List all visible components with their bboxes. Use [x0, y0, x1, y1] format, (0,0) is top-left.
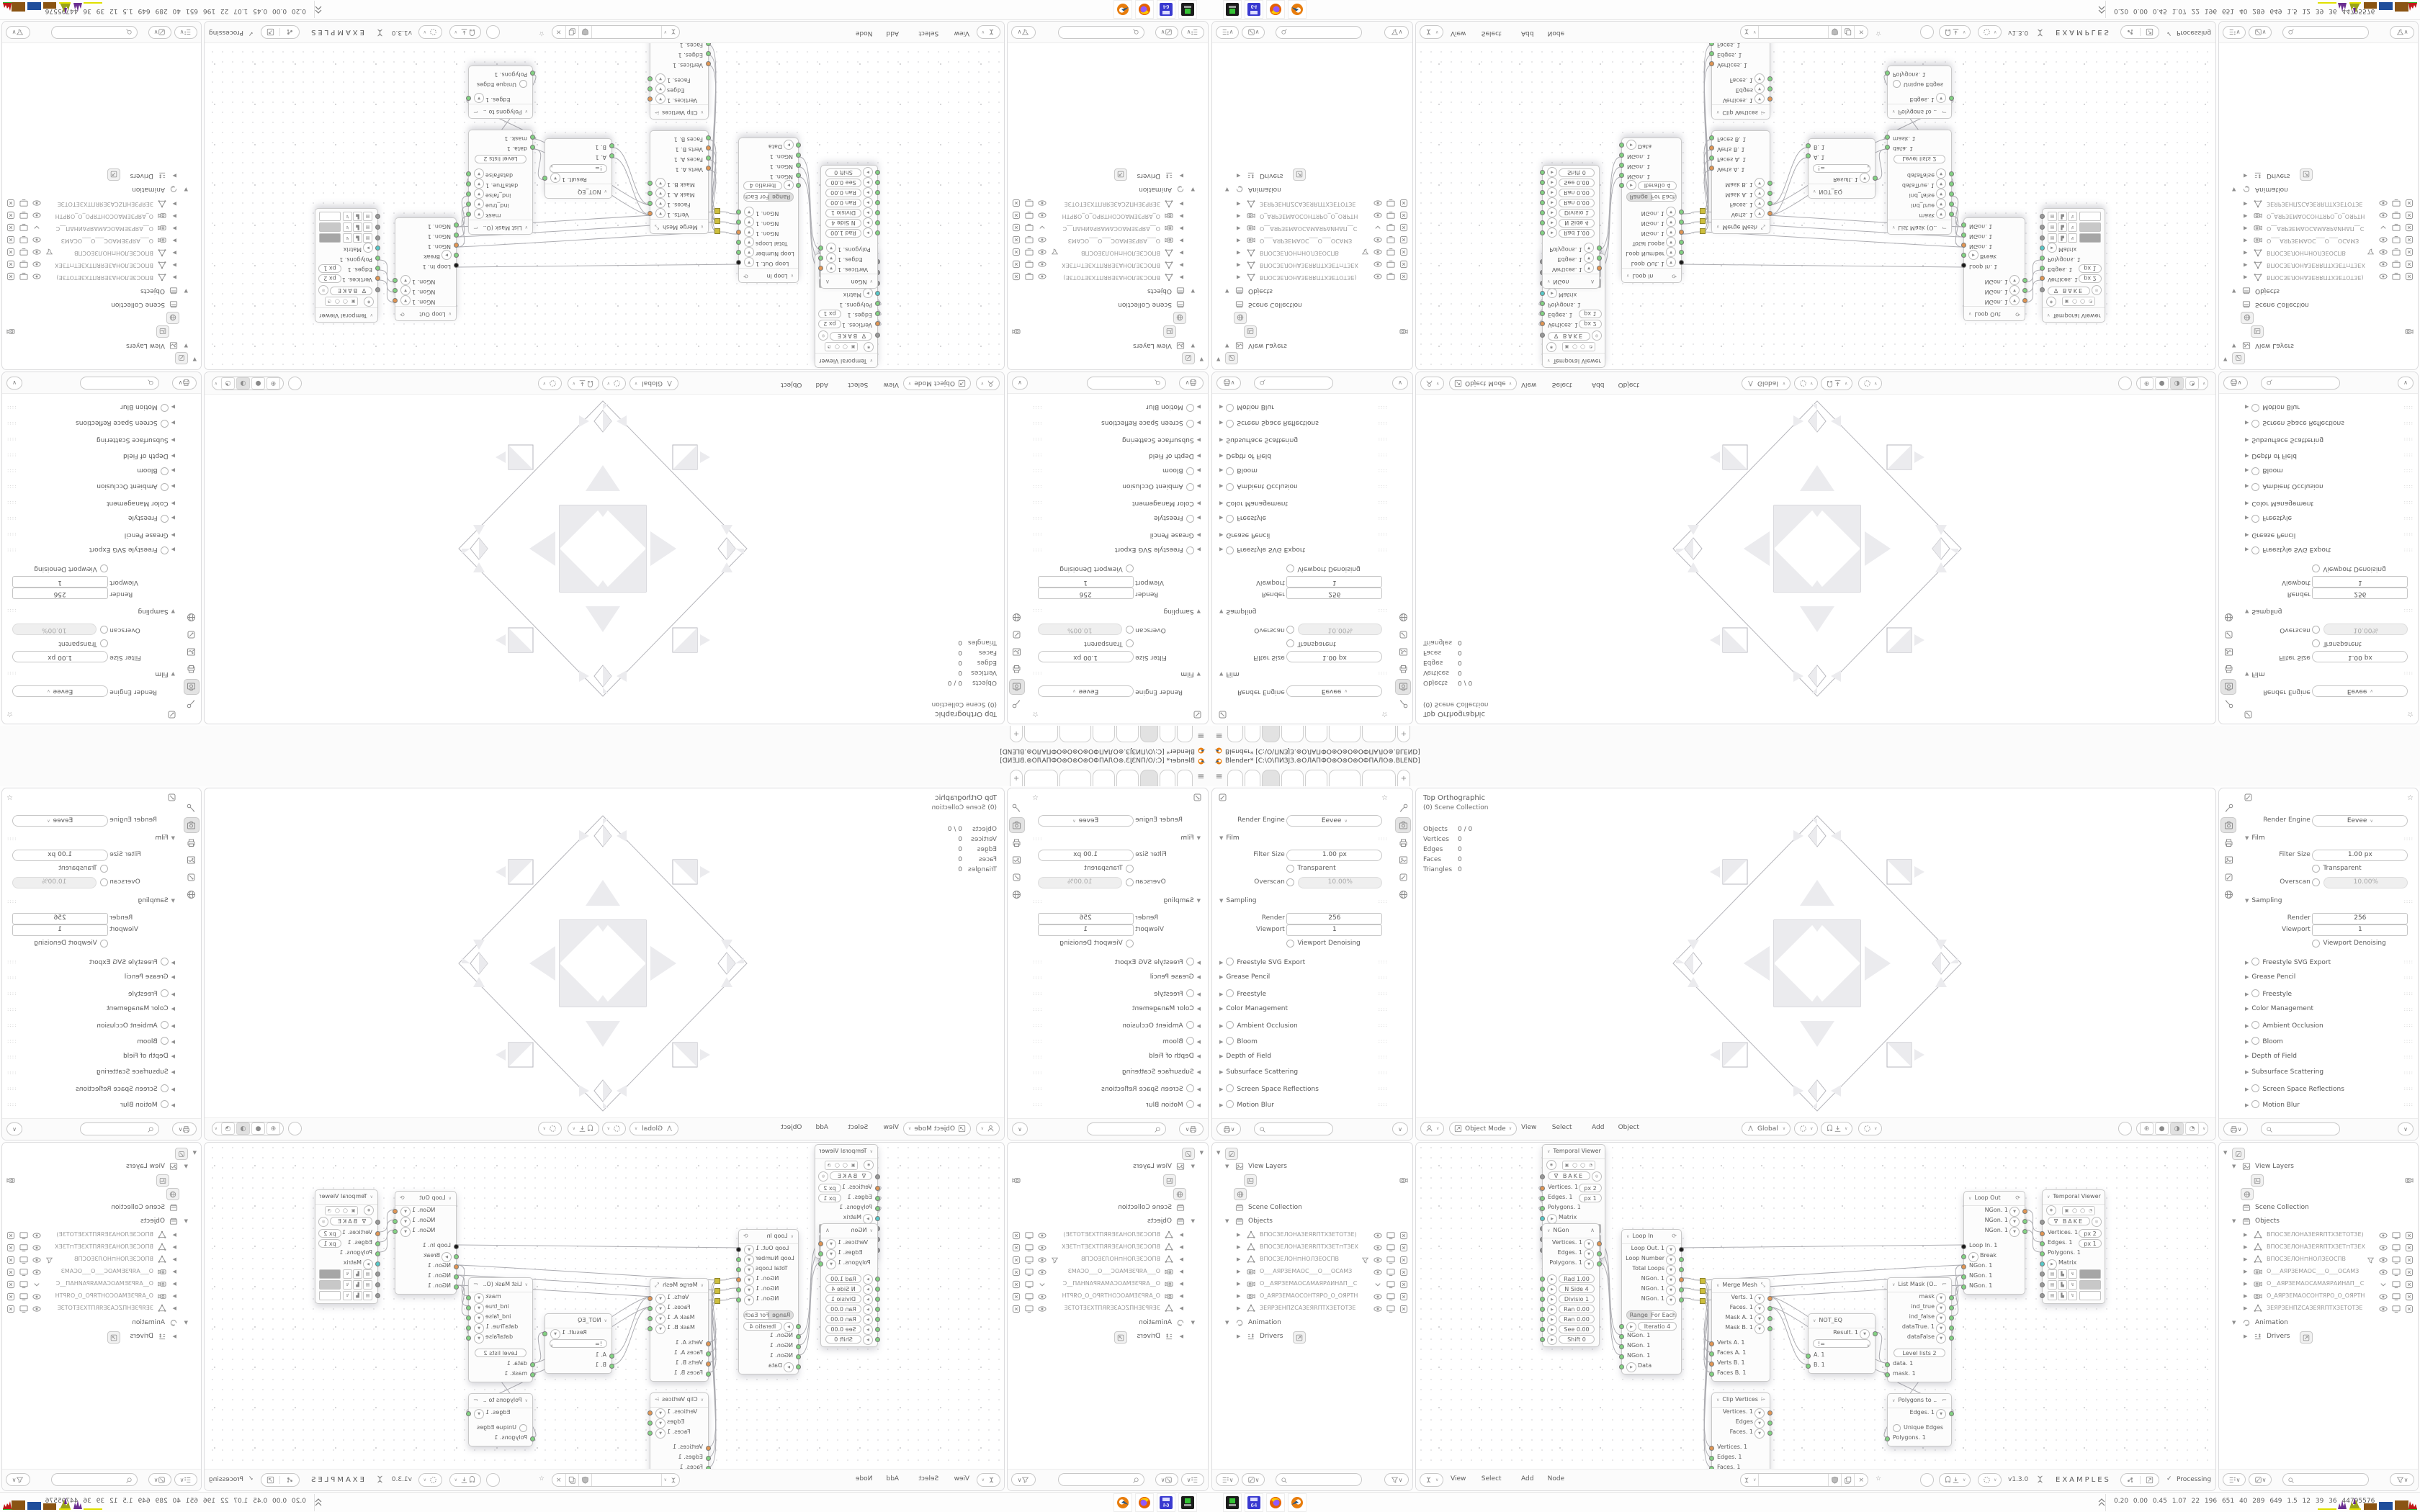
- node-not-eq[interactable]: ∨NOT_EQ▼Result. 1!=∨A. 1B. 1: [1808, 1313, 1875, 1374]
- socket-value-button[interactable]: ▼: [1860, 1329, 1870, 1339]
- socket-green-icon[interactable]: [454, 1254, 459, 1259]
- scene-button[interactable]: [175, 1148, 188, 1160]
- filter-id-button[interactable]: ∨: [148, 1473, 171, 1486]
- outliner-objects-row[interactable]: ▼Objects: [2, 1215, 201, 1228]
- socket-green-icon[interactable]: [375, 1251, 380, 1256]
- filter-id-button[interactable]: ∨: [1155, 26, 1178, 39]
- filter-size-field[interactable]: 1.00 px: [2312, 651, 2408, 662]
- socket-value-button[interactable]: ▼: [1754, 198, 1765, 208]
- shading-solid-button[interactable]: ●: [251, 1122, 265, 1135]
- unique-edges-checkbox[interactable]: [516, 80, 527, 88]
- scene-button[interactable]: [2232, 352, 2245, 364]
- segment-range[interactable]: Range: [768, 192, 794, 202]
- node-not-eq[interactable]: ∨NOT_EQ▼Result. 1!=∨A. 1B. 1: [544, 1313, 612, 1374]
- properties-tab-scene[interactable]: [1009, 627, 1025, 643]
- section-freestyle[interactable]: ▶Freestyle: [1154, 989, 1201, 998]
- section-grease-pencil[interactable]: ▶Grease Pencil: [1150, 973, 1201, 981]
- section-freestyle[interactable]: ▶Freestyle: [1154, 514, 1201, 523]
- window-titlebar[interactable]: Blender* [C:\О\ПИЗЈЗ.⊛ОЛАПФО⊛О⊛О⊛ОФПАЛО⊛…: [0, 756, 1210, 767]
- node-header[interactable]: ∨Temporal Viewer✎: [815, 353, 877, 367]
- viewer-display-button[interactable]: ◯: [333, 298, 341, 306]
- display-mode-button[interactable]: ∨: [1181, 26, 1204, 39]
- socket-green-icon[interactable]: [1619, 153, 1624, 158]
- socket-green-icon[interactable]: [1597, 1261, 1602, 1266]
- outliner-view-layers-row[interactable]: ▼View Layers: [1008, 339, 1208, 351]
- socket-green-icon[interactable]: [1619, 184, 1624, 189]
- workspace-tab-2[interactable]: [1245, 726, 1260, 742]
- socket-green-icon[interactable]: [1961, 1284, 1966, 1290]
- viewport-denoising-checkbox[interactable]: [2312, 940, 2323, 948]
- outliner-search-input[interactable]: [2282, 26, 2369, 39]
- socket-value-button[interactable]: ▼: [1936, 1313, 1946, 1323]
- viewer-eye-button[interactable]: ◉: [1546, 1160, 1556, 1170]
- swatch-option-button[interactable]: ↯: [343, 212, 352, 221]
- outliner-object-row[interactable]: ▶О___АЯРЗЕМАОС___О___ОСАМЗ: [1008, 1266, 1208, 1278]
- socket-toggle-button[interactable]: ▶: [442, 1252, 452, 1262]
- fake-user-star-icon[interactable]: ☆: [539, 30, 544, 37]
- copy-button[interactable]: [566, 1474, 579, 1486]
- pixel-size-field[interactable]: px 2: [1579, 320, 1602, 328]
- view-layer-button[interactable]: [1163, 1174, 1176, 1187]
- swatch-option-button[interactable]: ▤: [2048, 1269, 2057, 1279]
- sampling-render-field[interactable]: 256: [12, 913, 108, 924]
- segment-for-each[interactable]: For Each: [1652, 192, 1677, 202]
- socket-cyan-icon[interactable]: [875, 1216, 880, 1221]
- socket-value-button[interactable]: ▼: [474, 1313, 484, 1323]
- socket-green-icon[interactable]: [736, 240, 741, 246]
- snapping-button[interactable]: ∨: [568, 377, 599, 390]
- operator-select[interactable]: !=∨: [1813, 1339, 1870, 1348]
- outliner-object-row[interactable]: ▶ЗЕЯРЗЕНПZСАЗЕЯRПТХЗЕТОТЗЕ: [1008, 197, 1208, 210]
- shield-button[interactable]: [1828, 26, 1841, 38]
- pivot-point-button[interactable]: ∨: [602, 1122, 626, 1135]
- socket-value-button[interactable]: ▼: [744, 227, 754, 237]
- outliner-object-row[interactable]: ▶О___АЯРЗЕМАОС___О___ОСАМЗ: [1212, 1266, 1412, 1278]
- outliner-object-row[interactable]: ▶ЗЕЯРЗЕНПZСАЗЕЯRПТХЗЕТОТЗЕ: [2, 1302, 201, 1315]
- viewer-display-button[interactable]: ◔: [825, 1161, 833, 1169]
- viewport-denoising-checkbox[interactable]: [1286, 564, 1297, 572]
- transparent-checkbox[interactable]: [2312, 639, 2323, 647]
- section-ambient-occlusion[interactable]: ▶Ambient Occlusion: [97, 482, 175, 491]
- socket-orange-icon[interactable]: [2040, 276, 2045, 282]
- properties-tab-world[interactable]: [2220, 610, 2236, 626]
- section-grease-pencil[interactable]: ▶Grease Pencil: [125, 973, 175, 981]
- socket-value-button[interactable]: ▼: [2009, 295, 2020, 305]
- viewer-display-button[interactable]: ▣: [2063, 1207, 2071, 1215]
- socket-value-button[interactable]: ▼: [1936, 1303, 1946, 1313]
- overscan-checkbox[interactable]: [1123, 625, 1134, 634]
- outliner-object-row[interactable]: ▶ВПОСЗЕЛОНАЗЕЯRПТХЗЕТОТЗЕ): [1008, 271, 1208, 283]
- outliner-view-layer-item[interactable]: [2, 1174, 201, 1186]
- outliner-object-row[interactable]: ▶ЗЕЯРЗЕНПZСАЗЕЯRПТХЗЕТОТЗЕ: [2219, 1302, 2418, 1315]
- swatch-option-button[interactable]: ↯: [2068, 212, 2077, 221]
- outliner-objects-row[interactable]: ▼Objects: [1212, 284, 1412, 297]
- workspace-tab-1[interactable]: [1227, 770, 1243, 786]
- socket-green-icon[interactable]: [1885, 1372, 1890, 1377]
- sampling-render-field[interactable]: 256: [2312, 913, 2408, 924]
- section-depth-of-field[interactable]: ▶Depth of Field: [1149, 452, 1201, 459]
- outliner-animation-row[interactable]: ▼Animation: [1008, 1317, 1208, 1329]
- render-engine-select[interactable]: Eevee∨: [1286, 815, 1382, 827]
- interaction-mode-select[interactable]: Object Mode∨: [903, 377, 971, 390]
- particles-button[interactable]: [280, 1476, 300, 1484]
- node-header[interactable]: ∨NGon∧: [821, 274, 877, 288]
- socket--icon[interactable]: [2040, 225, 2045, 230]
- menu-hamburger-icon[interactable]: ≡: [1214, 730, 1224, 741]
- display-mode-button[interactable]: ∨: [174, 26, 197, 39]
- node-pill-field[interactable]: Level lists 2: [1894, 1349, 1945, 1357]
- socket-green-icon[interactable]: [1540, 191, 1545, 196]
- socket-value-button[interactable]: ▼: [655, 1294, 665, 1304]
- socket-green-icon[interactable]: [1540, 1307, 1545, 1312]
- socket-value-button[interactable]: ▼: [474, 1409, 484, 1419]
- node-overlay-button[interactable]: ∨: [1978, 25, 2002, 39]
- sampling-viewport-field[interactable]: 1: [2312, 576, 2408, 588]
- socket-toggle-button[interactable]: ▶: [784, 180, 794, 190]
- socket-value-button[interactable]: ▼: [1666, 1285, 1676, 1295]
- swatch-option-button[interactable]: ▤: [363, 212, 372, 221]
- node-header[interactable]: ∨Temporal Viewer✎: [2043, 307, 2105, 322]
- socket-value-field[interactable]: N Side 4: [1559, 1284, 1595, 1293]
- socket-green-icon[interactable]: [796, 1364, 801, 1369]
- outliner-object-row[interactable]: ▶ВПОСЗЕЛОНАЗЕЯRПТХЗЕТ⊓ТЗЕХ: [2219, 1241, 2418, 1254]
- node-header[interactable]: ∨Polygons to ..⌐: [469, 104, 532, 118]
- swatch-option-button[interactable]: ↯: [2068, 222, 2077, 232]
- socket-value-button[interactable]: ▼: [1936, 209, 1946, 219]
- socket-value-button[interactable]: ▼: [1936, 1409, 1946, 1419]
- section-depth-of-field[interactable]: ▶Depth of Field: [123, 452, 175, 459]
- socket-value-button[interactable]: ▼: [744, 1285, 754, 1295]
- display-mode-button[interactable]: ∨: [174, 1473, 197, 1486]
- socket-green-icon[interactable]: [736, 1287, 741, 1292]
- swatch-option-button[interactable]: ↯: [343, 222, 352, 232]
- bake-camera-button[interactable]: ◎: [818, 330, 828, 341]
- socket-green-icon[interactable]: [875, 1307, 880, 1312]
- section-motion-blur[interactable]: ▶Motion Blur: [120, 1100, 175, 1109]
- outliner-drivers-row[interactable]: ▶Drivers: [2219, 1331, 2418, 1343]
- socket-toggle-button[interactable]: ▶: [1547, 228, 1557, 238]
- socket-toggle-button[interactable]: ▶: [784, 1322, 794, 1332]
- node-editor[interactable]: ∨Temporal Viewer✎◉▣◯◯◔∇ BAKE◎Vertices. 1…: [1415, 1142, 2216, 1491]
- outliner-filter-button[interactable]: ∨: [1384, 1473, 1409, 1486]
- swatch-option-button[interactable]: ▙: [353, 1269, 362, 1279]
- outliner-objects-row[interactable]: ▼Objects: [2, 284, 201, 297]
- socket-value-button[interactable]: ▼: [1936, 179, 1946, 189]
- taskbar-app-blender[interactable]: [1288, 0, 1307, 19]
- outliner-view-layer-item[interactable]: [1212, 1174, 1412, 1186]
- pin-icon[interactable]: ☆: [1032, 794, 1039, 802]
- viewer-eye-button[interactable]: ◉: [864, 1160, 874, 1170]
- section-freestyle[interactable]: ▶Freestyle: [2245, 989, 2292, 998]
- socket-green-icon[interactable]: [542, 1331, 547, 1336]
- socket-green-icon[interactable]: [466, 1411, 471, 1416]
- socket-green-icon[interactable]: [818, 246, 823, 251]
- swatch-option-button[interactable]: ↯: [2068, 1291, 2077, 1300]
- socket-value-field[interactable]: Iteratio 4: [743, 1322, 782, 1331]
- section-subsurface-scattering[interactable]: ▶Subsurface Scattering: [1122, 436, 1201, 444]
- outliner-object-row[interactable]: ▶ЗЕЯРЗЕНПZСАЗЕЯRПТХЗЕТОТЗЕ: [1008, 1302, 1208, 1315]
- overscan-checkbox[interactable]: [2312, 878, 2323, 887]
- node-tree-selector[interactable]: ∨×: [552, 25, 680, 39]
- properties-tab-view-layer[interactable]: [1009, 852, 1025, 868]
- socket-toggle-button[interactable]: ▶: [1547, 1315, 1557, 1325]
- socket-orange-icon[interactable]: [736, 1277, 741, 1282]
- menu-hamburger-icon[interactable]: ≡: [1214, 771, 1224, 782]
- socket--icon[interactable]: [2040, 1293, 2045, 1298]
- node-menu-select[interactable]: Select: [1482, 1475, 1502, 1482]
- socket-green-icon[interactable]: [736, 210, 741, 215]
- world-button[interactable]: [2241, 312, 2254, 324]
- pin-icon[interactable]: ☆: [2407, 794, 2414, 802]
- socket-green-icon[interactable]: [1619, 1354, 1624, 1359]
- socket-green-icon[interactable]: [466, 96, 471, 102]
- properties-tab-output[interactable]: [1395, 662, 1411, 678]
- viewer-display-button[interactable]: ◯: [333, 1207, 341, 1215]
- outliner-object-row[interactable]: ▶О___АЯРЗЕМАОС___О___ОСАМЗ: [2219, 234, 2418, 246]
- outliner-object-row[interactable]: ▶О_АЯРЗЕМАОСОНТЯРО_О_ОЯРТН: [1008, 210, 1208, 222]
- outliner-filter-button[interactable]: ∨: [2390, 26, 2414, 39]
- world-button[interactable]: [1234, 1188, 1247, 1200]
- socket-value-button[interactable]: ▼: [744, 1265, 754, 1275]
- shading-rendered-button[interactable]: ◔: [2185, 1122, 2199, 1135]
- socket-orange-icon[interactable]: [647, 1410, 653, 1416]
- window-titlebar[interactable]: Blender* [C:\О\ПИЗЈЗ.⊛ОЛАПФО⊛О⊛О⊛ОФПАЛО⊛…: [0, 745, 1210, 756]
- socket-value-button[interactable]: ▼: [826, 1259, 836, 1269]
- sampling-render-field[interactable]: 256: [12, 588, 108, 599]
- socket-green-icon[interactable]: [1540, 1277, 1545, 1282]
- socket-toggle-button[interactable]: ▶: [863, 1315, 873, 1325]
- outliner-drivers-row[interactable]: ▶Drivers: [2, 1331, 201, 1343]
- socket-orange-icon[interactable]: [375, 1231, 380, 1236]
- drivers-extra-button[interactable]: [2300, 1331, 2313, 1344]
- socket--icon[interactable]: [375, 1272, 380, 1277]
- socket-value-button[interactable]: ▼: [474, 168, 484, 179]
- section-freestyle[interactable]: ▶Freestyle: [1219, 989, 1266, 998]
- socket-value-field[interactable]: N Side 4: [1559, 219, 1595, 228]
- reroute-node[interactable]: [1700, 1298, 1706, 1304]
- taskbar-app-blender[interactable]: [1113, 1493, 1132, 1512]
- section-color-management[interactable]: ▶Color Management: [107, 500, 175, 507]
- socket-value-button[interactable]: ▼: [744, 1295, 754, 1305]
- view-layer-button[interactable]: [1163, 325, 1176, 338]
- socket-green-icon[interactable]: [466, 1336, 471, 1341]
- properties-tab-render[interactable]: [2220, 817, 2236, 833]
- add-workspace-tab-button[interactable]: +: [1010, 726, 1023, 742]
- viewer-eye-button[interactable]: ◉: [864, 342, 874, 352]
- socket-toggle-button[interactable]: ▶: [784, 1362, 794, 1372]
- node-menu-view[interactable]: View: [1451, 1475, 1466, 1482]
- socket--icon[interactable]: [2040, 1220, 2045, 1225]
- viewport-menu-view[interactable]: View: [1521, 381, 1536, 388]
- properties-tab-view-layer[interactable]: [1009, 644, 1025, 660]
- node-not-eq[interactable]: ∨NOT_EQ▼Result. 1!=∨A. 1B. 1: [1808, 138, 1875, 199]
- outliner-object-row[interactable]: ▶ВПОСЗЕЛОН⊓НОЛЗЕОСПВ: [2219, 246, 2418, 258]
- socket--icon[interactable]: [375, 214, 380, 219]
- segment-range[interactable]: Range: [1626, 1310, 1652, 1320]
- socket-value-button[interactable]: ▼: [400, 285, 411, 295]
- section-depth-of-field[interactable]: ▶Depth of Field: [1219, 452, 1271, 459]
- viewport-menu-view[interactable]: View: [1521, 1124, 1536, 1131]
- overscan-checkbox[interactable]: [1286, 878, 1297, 887]
- render-engine-select[interactable]: Eevee∨: [1286, 685, 1382, 697]
- outliner-object-row[interactable]: ▶О___АЯРЗЕМАОС___О___ОСАМЗ: [1008, 234, 1208, 246]
- render-engine-select[interactable]: Eevee∨: [1038, 685, 1134, 697]
- socket-black-icon[interactable]: [1679, 1247, 1684, 1252]
- swatch-option-button[interactable]: ▤: [363, 222, 372, 232]
- section-ambient-occlusion[interactable]: ▶Ambient Occlusion: [1219, 1021, 1298, 1030]
- outliner-object-row[interactable]: ▶ВПОСЗЕЛОНАЗЕЯRПТХЗЕТОТЗЕ): [2219, 271, 2418, 283]
- outliner-object-row[interactable]: ▶О__АЯРЗЕМАОСАМАЯРАИНАП__С: [1008, 1278, 1208, 1290]
- socket-cyan-icon[interactable]: [1540, 292, 1545, 297]
- socket-green-icon[interactable]: [466, 1315, 471, 1320]
- filter-id-button[interactable]: ∨: [2249, 26, 2272, 39]
- socket-black-icon[interactable]: [1961, 1244, 1966, 1249]
- properties-tab-output[interactable]: [184, 662, 200, 678]
- socket-green-icon[interactable]: [1885, 1436, 1890, 1441]
- bake-camera-button[interactable]: ◎: [318, 285, 328, 295]
- socket-green-icon[interactable]: [466, 1305, 471, 1310]
- overscan-field[interactable]: 10.00%: [1298, 624, 1382, 635]
- socket-green-icon[interactable]: [818, 256, 823, 261]
- socket-toggle-button[interactable]: ▶: [863, 177, 873, 187]
- section-bloom[interactable]: ▶Bloom: [1219, 1037, 1258, 1045]
- socket-value-button[interactable]: ▼: [1754, 1304, 1765, 1314]
- outliner-object-row[interactable]: ▶О__АЯРЗЕМАОСАМАЯРАИНАП__С: [1212, 1278, 1412, 1290]
- copy-button[interactable]: [566, 26, 579, 38]
- socket-green-icon[interactable]: [2040, 1241, 2045, 1246]
- socket-green-icon[interactable]: [393, 279, 398, 284]
- socket-toggle-button[interactable]: ▶: [1547, 1274, 1557, 1284]
- properties-tab-tool[interactable]: [2220, 696, 2236, 712]
- transparent-checkbox[interactable]: [1123, 639, 1134, 647]
- reroute-node[interactable]: [1700, 1278, 1706, 1284]
- node-polygons-to-[interactable]: ∨Polygons to ..⌐▼Edges. 1Unique EdgesPol…: [468, 1393, 533, 1446]
- pixel-size-field[interactable]: px 1: [2079, 1239, 2102, 1248]
- viewer-display-button[interactable]: ◯: [341, 1207, 349, 1215]
- section-color-management[interactable]: ▶Color Management: [1219, 500, 1288, 507]
- socket-value-field[interactable]: Ran 0.00: [825, 1315, 861, 1323]
- socket-value-button[interactable]: ▼: [2009, 1207, 2020, 1217]
- node-header[interactable]: ∨NOT_EQ: [1809, 184, 1875, 198]
- viewport-menu-select[interactable]: Select: [1552, 381, 1572, 388]
- socket-black-icon[interactable]: [454, 1244, 459, 1249]
- view-layer-button[interactable]: [1244, 325, 1257, 338]
- outliner-view-layer-item[interactable]: [1008, 326, 1208, 338]
- socket-value-button[interactable]: ▼: [400, 1217, 411, 1227]
- overscan-field[interactable]: 10.00%: [12, 624, 97, 635]
- outliner-scene-row[interactable]: ▼: [2219, 353, 2418, 365]
- socket-orange-icon[interactable]: [1961, 243, 1966, 248]
- viewport-menu-object[interactable]: Object: [1618, 381, 1639, 388]
- outliner-view-layers-row[interactable]: ▼View Layers: [2219, 1161, 2418, 1173]
- properties-tab-scene[interactable]: [184, 869, 200, 885]
- socket-orange-icon[interactable]: [1597, 1241, 1602, 1246]
- outliner-object-row[interactable]: ▶ВПОСЗЕЛОНАЗЕЯRПТХЗЕТОТЗЕ): [2, 1229, 201, 1241]
- display-mode-button[interactable]: ∨: [1216, 1473, 1239, 1486]
- properties-tab-output[interactable]: [2220, 662, 2236, 678]
- node-menu-node[interactable]: Node: [856, 1475, 873, 1482]
- outliner-objects-row[interactable]: ▼Objects: [2219, 1215, 2418, 1228]
- socket-green-icon[interactable]: [1540, 171, 1545, 176]
- filter-id-button[interactable]: ∨: [1242, 1473, 1265, 1486]
- view-layer-button[interactable]: [1244, 1174, 1257, 1187]
- socket-value-button[interactable]: ▼: [1936, 199, 1946, 209]
- viewer-display-button[interactable]: ◔: [2087, 298, 2094, 306]
- viewport-editor[interactable]: Top Orthographic (0) Scene Collection Ob…: [1415, 372, 2216, 724]
- socket-green-icon[interactable]: [1679, 1257, 1684, 1262]
- outliner-object-row[interactable]: ▶ВПОСЗЕЛОН⊓НОЛЗЕОСПВ: [2, 246, 201, 258]
- section-screen-space-reflections[interactable]: ▶Screen Space Reflections: [2245, 1084, 2344, 1093]
- socket-value-field[interactable]: N Side 4: [825, 219, 861, 228]
- outliner-object-row[interactable]: ▶О_АЯРЗЕМАОСОНТЯРО_О_ОЯРТН: [1008, 1290, 1208, 1302]
- section-color-management[interactable]: ▶Color Management: [1219, 1005, 1288, 1012]
- swatch-option-button[interactable]: ↯: [343, 1291, 352, 1300]
- outliner-world-item[interactable]: [2219, 312, 2418, 325]
- outliner-filter-button[interactable]: ∨: [1011, 26, 1036, 39]
- section-motion-blur[interactable]: ▶Motion Blur: [2245, 1100, 2300, 1109]
- scene-button[interactable]: [1225, 1148, 1238, 1160]
- pixel-size-field[interactable]: px 1: [818, 310, 841, 318]
- socket-value-button[interactable]: ▼: [400, 275, 411, 285]
- bake-camera-button[interactable]: ◎: [1592, 330, 1602, 341]
- section-color-management[interactable]: ▶Color Management: [1132, 1005, 1201, 1012]
- properties-tab-render[interactable]: [2220, 679, 2236, 695]
- swatch-option-button[interactable]: ↯: [2068, 233, 2077, 243]
- swatch-option-button[interactable]: ↯: [2068, 1280, 2077, 1290]
- drivers-extra-button[interactable]: [1114, 168, 1127, 181]
- socket-green-icon[interactable]: [1949, 1411, 1954, 1416]
- socket-toggle-button[interactable]: ▶: [863, 288, 873, 298]
- outliner-animation-row[interactable]: ▼Animation: [1212, 1317, 1412, 1329]
- properties-search-input[interactable]: [2261, 377, 2340, 390]
- section-color-management[interactable]: ▶Color Management: [2245, 500, 2313, 507]
- proportional-edit-button[interactable]: ∨: [538, 1122, 562, 1135]
- outliner-animation-row[interactable]: ▼Animation: [2219, 1317, 2418, 1329]
- section-color-management[interactable]: ▶Color Management: [107, 1005, 175, 1012]
- section-freestyle[interactable]: ▶Freestyle: [128, 989, 175, 998]
- node-snapping-button[interactable]: ∨: [1939, 1473, 1971, 1487]
- socket-green-icon[interactable]: [466, 202, 471, 207]
- socket-value-button[interactable]: ▼: [1936, 1323, 1946, 1333]
- node-header[interactable]: ∨Loop Out⟳: [395, 1192, 456, 1206]
- socket-value-button[interactable]: ▼: [474, 209, 484, 219]
- overscan-checkbox[interactable]: [1123, 878, 1134, 887]
- socket-value-button[interactable]: ▼: [1754, 94, 1765, 104]
- outliner-object-row[interactable]: ▶ВПОСЗЕЛОНАЗЕЯRПТХЗЕТОТЗЕ): [1212, 271, 1412, 283]
- node-loop-out[interactable]: ∨Loop Out⟳▼NGon. 1▼NGon. 1▼NGon. 1Loop I…: [1963, 1191, 2025, 1295]
- workspace-tab-6[interactable]: [1059, 726, 1091, 742]
- gizmo-toggle-button[interactable]: [288, 1122, 302, 1135]
- socket-green-icon[interactable]: [647, 1421, 653, 1426]
- node-menu-add[interactable]: Add: [887, 1475, 899, 1482]
- outliner-object-row[interactable]: ▶О_АЯРЗЕМАОСОНТЯРО_О_ОЯРТН: [2, 1290, 201, 1302]
- properties-tab-output[interactable]: [1395, 834, 1411, 850]
- workspace-tab-6[interactable]: [1059, 770, 1091, 786]
- node-header[interactable]: ∨Temporal Viewer✎: [315, 1190, 377, 1205]
- bake-button[interactable]: ∇ BAKE: [830, 1171, 872, 1180]
- socket--icon[interactable]: [2040, 214, 2045, 219]
- outliner-view-layers-row[interactable]: ▼View Layers: [1008, 1161, 1208, 1173]
- socket-green-icon[interactable]: [1619, 174, 1624, 179]
- socket-value-button[interactable]: ▼: [550, 173, 560, 183]
- socket-green-icon[interactable]: [1540, 1317, 1545, 1322]
- outliner-drivers-row[interactable]: ▶Drivers: [1212, 1331, 1412, 1343]
- properties-tab-tool[interactable]: [1395, 800, 1411, 816]
- outliner-object-row[interactable]: ▶О__АЯРЗЕМАОСАМАЯРАИНАП__С: [2, 222, 201, 234]
- pixel-size-field[interactable]: px 1: [318, 1239, 341, 1248]
- viewport-denoising-checkbox[interactable]: [2312, 564, 2323, 572]
- socket-green-icon[interactable]: [466, 192, 471, 197]
